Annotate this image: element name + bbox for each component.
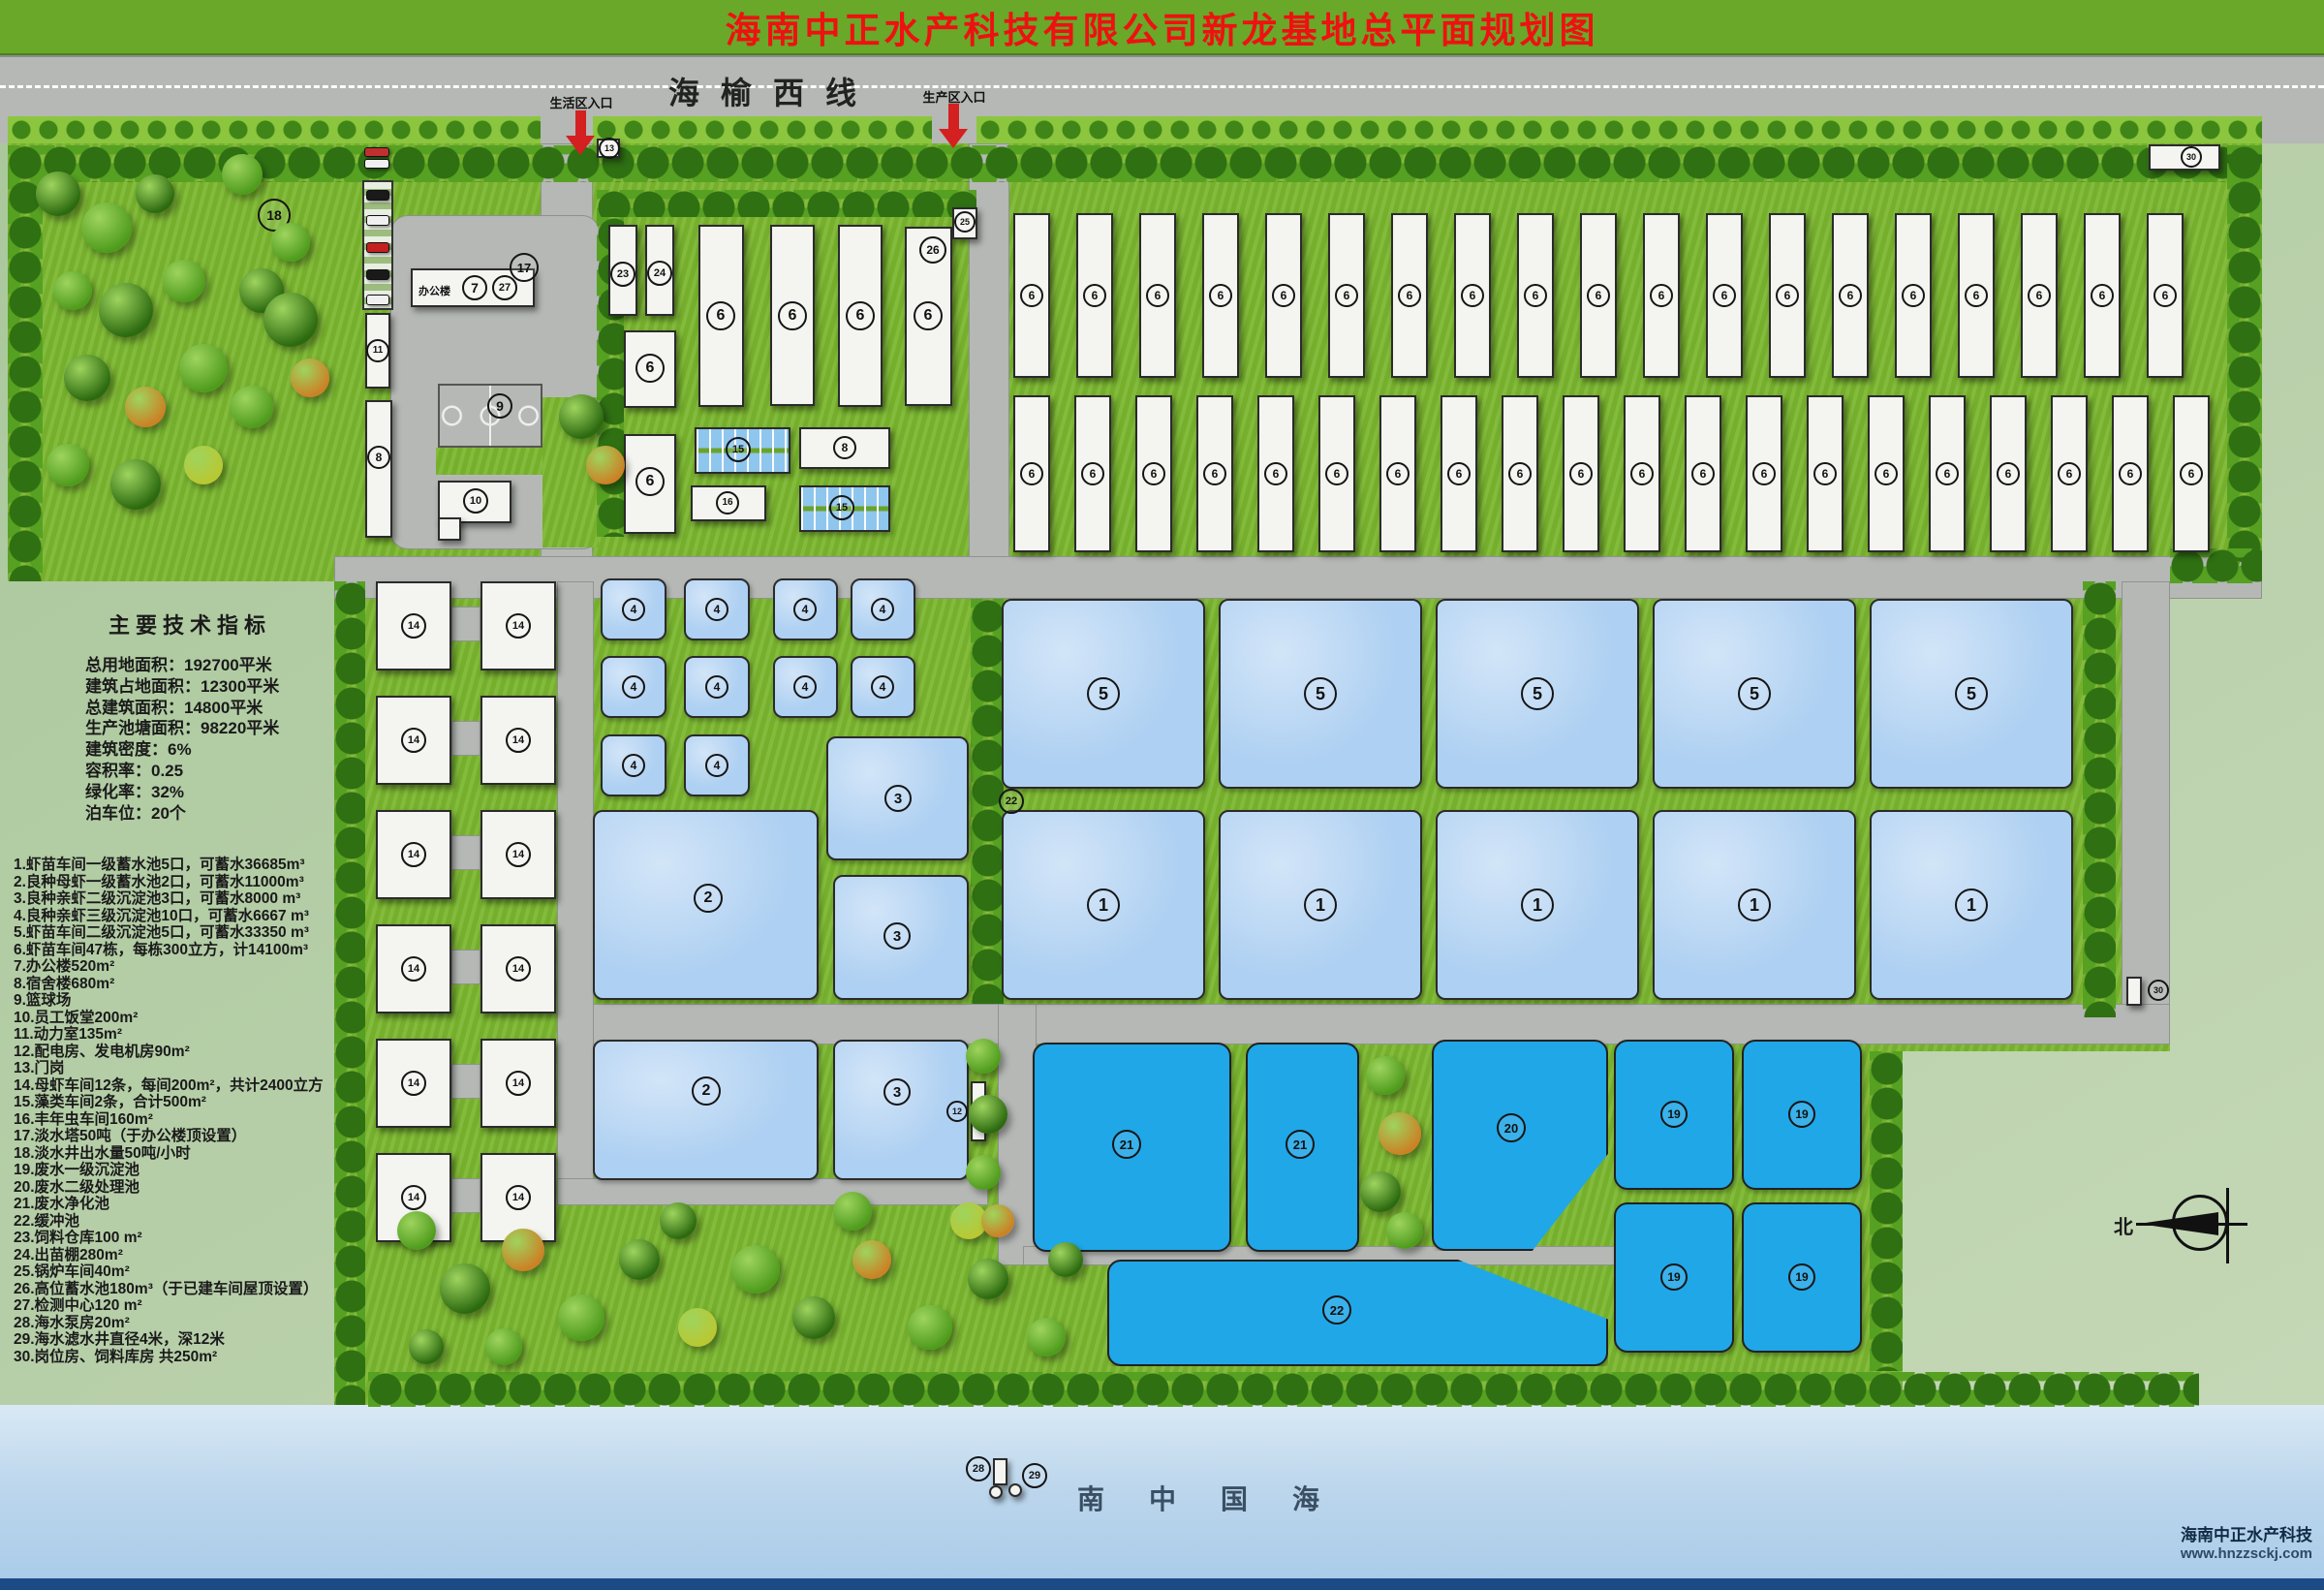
tree-icon (792, 1296, 835, 1339)
sea-label: 南中国海 (1077, 1479, 1364, 1517)
indicator-lines: 总用地面积：192700平米建筑占地面积：12300平米总建筑面积：14800平… (85, 655, 279, 824)
tree-icon (136, 174, 174, 213)
tree-border-top (8, 145, 2262, 182)
marker-14: 14 (401, 1071, 426, 1096)
legend-item: 23.饲料仓库100 m² (14, 1230, 324, 1247)
marker-19: 19 (1660, 1101, 1688, 1128)
marker-14: 14 (401, 956, 426, 982)
indicator-line: 建筑密度：6% (85, 739, 279, 761)
legend-item: 3.良种亲虾二级沉淀池3口，可蓄水8000 m³ (14, 890, 324, 908)
marker-6: 6 (2091, 284, 2114, 307)
legend-item: 21.废水净化池 (14, 1196, 324, 1213)
marker-4: 4 (622, 754, 645, 777)
marker-5: 5 (1738, 677, 1771, 710)
workshop-14-connector (451, 607, 480, 641)
compass-north-label: 北 (2114, 1211, 2133, 1239)
marker-6: 6 (1839, 284, 1862, 307)
marker-6: 6 (1146, 284, 1169, 307)
marker-6: 6 (846, 301, 875, 330)
marker-15: 15 (829, 495, 854, 520)
marker-28: 28 (966, 1456, 991, 1481)
road-verge (593, 116, 932, 143)
marker-25: 25 (954, 211, 976, 233)
indicator-line: 总用地面积：192700平米 (85, 655, 279, 676)
marker-5: 5 (1521, 677, 1554, 710)
marker-14: 14 (401, 842, 426, 867)
production-entrance-arrow-icon (948, 104, 959, 129)
road-name-label: 海榆西线 (668, 69, 878, 113)
marker-27: 27 (492, 275, 517, 300)
legend-item: 4.良种亲虾三级沉淀池10口，可蓄水6667 m³ (14, 908, 324, 925)
car-icon (366, 215, 389, 226)
tree-icon (619, 1239, 660, 1280)
marker-6: 6 (1020, 462, 1043, 485)
tree-icon (271, 223, 310, 262)
marker-30: 30 (2148, 980, 2169, 1001)
compass-axis-v (2226, 1188, 2229, 1263)
tree-icon (231, 386, 273, 428)
tree-icon (981, 1204, 1014, 1237)
legend-item: 20.废水二级处理池 (14, 1179, 324, 1197)
canteen-10-wing (438, 517, 461, 541)
filter-well-icon (989, 1485, 1003, 1499)
marker-6: 6 (1209, 284, 1232, 307)
indicators-title: 主要技术指标 (108, 608, 271, 639)
tree-icon (485, 1328, 522, 1365)
tree-icon (908, 1305, 952, 1350)
marker-6: 6 (1713, 284, 1736, 307)
marker-22: 22 (999, 789, 1024, 814)
compass-icon: 北 (2112, 1188, 2247, 1265)
marker-7: 7 (462, 275, 487, 300)
marker-6: 6 (1752, 462, 1776, 485)
marker-11: 11 (366, 339, 389, 362)
marker-29: 29 (1022, 1463, 1047, 1488)
legend-item: 7.办公楼520m² (14, 958, 324, 976)
hedge-mid-block-top (597, 190, 976, 217)
tree-icon (99, 283, 153, 337)
marker-1: 1 (1738, 889, 1771, 921)
marker-6: 6 (2058, 462, 2081, 485)
tree-border-sea-fence (368, 1372, 2199, 1407)
legend-item: 2.良种母虾一级蓄水池2口，可蓄水11000m³ (14, 874, 324, 891)
marker-17: 17 (510, 253, 539, 282)
marker-6: 6 (1650, 284, 1673, 307)
marker-6: 6 (1325, 462, 1348, 485)
gate-structure (364, 147, 389, 157)
living-entrance-label: 生活区入口 (528, 93, 635, 111)
marker-6: 6 (1398, 284, 1421, 307)
marker-6: 6 (2028, 284, 2051, 307)
legend-item: 30.岗位房、饲料库房 共250m² (14, 1349, 324, 1366)
road-center-dash-line (0, 85, 2324, 88)
workshop-14-connector (451, 1064, 480, 1099)
legend-item: 14.母虾车间12条，每间200m²，共计2400立方 (14, 1077, 324, 1095)
tree-icon (968, 1259, 1008, 1299)
legend-item: 13.门岗 (14, 1060, 324, 1077)
legend-item: 24.出苗棚280m² (14, 1247, 324, 1264)
sea-pump-house-28 (993, 1458, 1007, 1485)
car-icon (366, 242, 389, 253)
tree-border-right-lower (1870, 1051, 1903, 1371)
site-plan-canvas: 海南中正水产科技有限公司新龙基地总平面规划图 海榆西线 生活区入口 生产区入口 … (0, 0, 2324, 1590)
marker-6: 6 (2119, 462, 2142, 485)
tree-icon (966, 1155, 1001, 1190)
tree-icon (558, 1294, 604, 1341)
legend-item: 18.淡水井出水量50吨/小时 (14, 1145, 324, 1163)
marker-5: 5 (1955, 677, 1988, 710)
compass-needle-icon (2139, 1212, 2218, 1235)
legend-item: 22.缓冲池 (14, 1213, 324, 1231)
marker-14: 14 (506, 613, 531, 639)
marker-4: 4 (705, 598, 728, 621)
living-entrance-arrowhead-icon (566, 136, 595, 155)
marker-5: 5 (1304, 677, 1337, 710)
tree-icon (409, 1329, 444, 1364)
marker-19: 19 (1660, 1263, 1688, 1291)
tree-icon (559, 394, 604, 439)
marker-5: 5 (1087, 677, 1120, 710)
car-icon (366, 295, 389, 305)
post-house-30-side (2126, 977, 2142, 1006)
marker-14: 14 (401, 728, 426, 753)
watermark-company: 海南中正水产科技 (2181, 1521, 2312, 1545)
marker-6: 6 (1081, 462, 1104, 485)
marker-6: 6 (1447, 462, 1471, 485)
tree-icon (660, 1202, 697, 1239)
watermark-website: www.hnzzsckj.com (2181, 1545, 2312, 1562)
marker-6: 6 (1875, 462, 1898, 485)
marker-9: 9 (487, 393, 512, 419)
legend-item: 29.海水滤水井直径4米，深12米 (14, 1331, 324, 1349)
tree-icon (440, 1263, 490, 1314)
tree-icon (833, 1192, 872, 1231)
tree-icon (966, 1039, 1001, 1074)
marker-19: 19 (1788, 1263, 1815, 1291)
marker-8: 8 (833, 436, 856, 459)
marker-6: 6 (1965, 284, 1988, 307)
marker-6: 6 (1203, 462, 1226, 485)
marker-22: 22 (1322, 1295, 1351, 1325)
marker-10: 10 (463, 488, 488, 514)
tree-icon (110, 459, 161, 510)
marker-4: 4 (871, 675, 894, 699)
marker-6: 6 (635, 354, 665, 383)
tree-icon (81, 203, 132, 253)
internal-road-v3 (2122, 581, 2170, 1027)
filter-well-icon (1008, 1483, 1022, 1497)
legend-item: 1.虾苗车间一级蓄水池5口，可蓄水36685m³ (14, 857, 324, 874)
tree-icon (36, 171, 80, 216)
marker-21: 21 (1286, 1130, 1315, 1159)
legend-item: 26.高位蓄水池180m³（于已建车间屋顶设置） (14, 1281, 324, 1298)
sea-area: 南中国海 海南中正水产科技 www.hnzzsckj.com (0, 1405, 2324, 1590)
office-building-label: 办公楼 (418, 283, 450, 298)
marker-6: 6 (1083, 284, 1106, 307)
road-verge (976, 116, 2262, 143)
gate-structure (364, 159, 389, 169)
marker-26: 26 (919, 236, 946, 264)
car-icon (366, 269, 389, 280)
tree-icon (586, 446, 625, 484)
watermark: 海南中正水产科技 www.hnzzsckj.com (2181, 1521, 2312, 1562)
marker-16: 16 (716, 491, 739, 514)
tree-icon (163, 260, 205, 302)
legend-list: 1.虾苗车间一级蓄水池5口，可蓄水36685m³2.良种母虾一级蓄水池2口，可蓄… (14, 857, 324, 1365)
marker-6: 6 (1142, 462, 1165, 485)
tree-icon (397, 1211, 436, 1250)
tree-icon (125, 387, 166, 427)
marker-1: 1 (1304, 889, 1337, 921)
marker-30: 30 (2181, 146, 2202, 168)
marker-4: 4 (705, 754, 728, 777)
legend-item: 8.宿舍楼680m² (14, 976, 324, 993)
production-entrance: 生产区入口 (901, 87, 1007, 106)
marker-4: 4 (871, 598, 894, 621)
marker-4: 4 (793, 675, 817, 699)
marker-21: 21 (1112, 1130, 1141, 1159)
tree-icon (678, 1308, 717, 1347)
workshop-14-connector (451, 835, 480, 870)
marker-24: 24 (647, 261, 672, 286)
indicator-line: 建筑占地面积：12300平米 (85, 676, 279, 698)
living-entrance: 生活区入口 (528, 93, 635, 111)
tree-icon (64, 355, 110, 401)
tree-icon (502, 1229, 544, 1271)
tree-icon (1048, 1242, 1083, 1277)
production-entrance-arrowhead-icon (939, 129, 968, 148)
marker-13: 13 (599, 138, 620, 159)
internal-road-h4 (557, 1178, 988, 1205)
technical-indicators-panel: 主要技术指标 总用地面积：192700平米建筑占地面积：12300平米总建筑面积… (0, 581, 334, 1405)
marker-14: 14 (401, 1185, 426, 1210)
marker-1: 1 (1087, 889, 1120, 921)
marker-6: 6 (635, 467, 665, 496)
marker-6: 6 (2154, 284, 2177, 307)
marker-20: 20 (1497, 1113, 1526, 1142)
indicator-line: 总建筑面积：14800平米 (85, 698, 279, 719)
marker-2: 2 (692, 1076, 721, 1106)
workshop-14-connector (451, 950, 480, 984)
legend-item: 10.员工饭堂200m² (14, 1010, 324, 1027)
tree-icon (179, 344, 228, 392)
marker-8: 8 (367, 446, 390, 469)
tree-icon (1366, 1056, 1405, 1095)
tree-icon (291, 359, 329, 397)
legend-item: 19.废水一级沉淀池 (14, 1162, 324, 1179)
marker-6: 6 (1264, 462, 1287, 485)
bottom-frame-bar (0, 1578, 2324, 1590)
marker-2: 2 (694, 884, 723, 913)
tree-icon (731, 1245, 780, 1294)
marker-23: 23 (610, 262, 635, 287)
legend-item: 17.淡水塔50吨（于办公楼顶设置） (14, 1128, 324, 1145)
marker-6: 6 (1461, 284, 1484, 307)
legend-item: 11.动力室135m² (14, 1026, 324, 1044)
tree-icon (222, 154, 263, 195)
marker-6: 6 (1936, 462, 1959, 485)
marker-6: 6 (1776, 284, 1799, 307)
marker-14: 14 (506, 1071, 531, 1096)
legend-item: 12.配电房、发电机房90m² (14, 1044, 324, 1061)
tree-border-left (8, 145, 43, 581)
internal-road-v4 (557, 581, 594, 1205)
marker-4: 4 (622, 598, 645, 621)
legend-item: 28.海水泵房20m² (14, 1315, 324, 1332)
tree-border-step (2170, 548, 2262, 583)
marker-14: 14 (506, 842, 531, 867)
marker-19: 19 (1788, 1101, 1815, 1128)
title-bar: 海南中正水产科技有限公司新龙基地总平面规划图 (0, 0, 2324, 55)
marker-3: 3 (884, 785, 912, 812)
page-title: 海南中正水产科技有限公司新龙基地总平面规划图 (726, 1, 1599, 53)
tree-icon (852, 1240, 891, 1279)
marker-3: 3 (883, 1078, 911, 1106)
tree-icon (969, 1095, 1007, 1134)
workshop-14-connector (451, 721, 480, 756)
tree-icon (46, 444, 89, 486)
tree-border-legend-edge (334, 581, 365, 1405)
legend-item: 5.虾苗车间二级沉淀池5口，可蓄水33350 m³ (14, 924, 324, 942)
marker-6: 6 (1020, 284, 1043, 307)
marker-6: 6 (1630, 462, 1654, 485)
marker-6: 6 (1691, 462, 1715, 485)
legend-item: 25.锅炉车间40m² (14, 1263, 324, 1281)
legend-item: 16.丰年虫车间160m² (14, 1111, 324, 1129)
tree-icon (1360, 1171, 1401, 1212)
marker-14: 14 (401, 613, 426, 639)
marker-6: 6 (1997, 462, 2020, 485)
tree-icon (184, 446, 223, 484)
legend-item: 6.虾苗车间47栋，每栋300立方，计14100m³ (14, 942, 324, 959)
tree-icon (1027, 1318, 1066, 1356)
marker-4: 4 (705, 675, 728, 699)
marker-14: 14 (506, 728, 531, 753)
plaza-garden (436, 448, 542, 475)
marker-3: 3 (883, 922, 911, 950)
indicator-line: 泊车位：20个 (85, 803, 279, 825)
marker-6: 6 (1386, 462, 1410, 485)
living-entrance-arrow-icon (575, 110, 586, 136)
marker-14: 14 (506, 956, 531, 982)
road-verge (8, 116, 541, 143)
marker-6: 6 (914, 301, 943, 330)
legend-item: 9.篮球场 (14, 992, 324, 1010)
marker-6: 6 (1813, 462, 1837, 485)
basketball-court-9 (438, 384, 542, 448)
internal-road-h2 (593, 1004, 2170, 1044)
indicator-line: 绿化率：32% (85, 782, 279, 803)
marker-6: 6 (706, 301, 735, 330)
indicator-line: 容积率：0.25 (85, 761, 279, 782)
marker-6: 6 (1508, 462, 1532, 485)
tree-border-right-upper (2227, 145, 2262, 581)
marker-4: 4 (793, 598, 817, 621)
marker-1: 1 (1955, 889, 1988, 921)
tree-icon (53, 271, 92, 310)
tree-icon (1379, 1112, 1421, 1155)
marker-6: 6 (1524, 284, 1547, 307)
marker-1: 1 (1521, 889, 1554, 921)
marker-6: 6 (778, 301, 807, 330)
pond-2 (593, 1040, 819, 1180)
marker-12: 12 (946, 1101, 968, 1122)
tree-icon (263, 293, 318, 347)
workshop-14-connector (451, 1178, 480, 1213)
marker-6: 6 (1272, 284, 1295, 307)
marker-15: 15 (726, 437, 751, 462)
marker-6: 6 (1569, 462, 1593, 485)
legend-item: 15.藻类车间2条，合计500m² (14, 1094, 324, 1111)
marker-6: 6 (1335, 284, 1358, 307)
marker-6: 6 (2180, 462, 2203, 485)
legend-item: 27.检测中心120 m² (14, 1297, 324, 1315)
car-icon (366, 190, 389, 201)
marker-6: 6 (1902, 284, 1925, 307)
dormitory-8 (365, 400, 392, 538)
marker-4: 4 (622, 675, 645, 699)
marker-6: 6 (1587, 284, 1610, 307)
indicator-line: 生产池塘面积：98220平米 (85, 718, 279, 739)
marker-14: 14 (506, 1185, 531, 1210)
tree-border-right-middle (2083, 581, 2116, 1017)
tree-icon (1386, 1212, 1423, 1249)
